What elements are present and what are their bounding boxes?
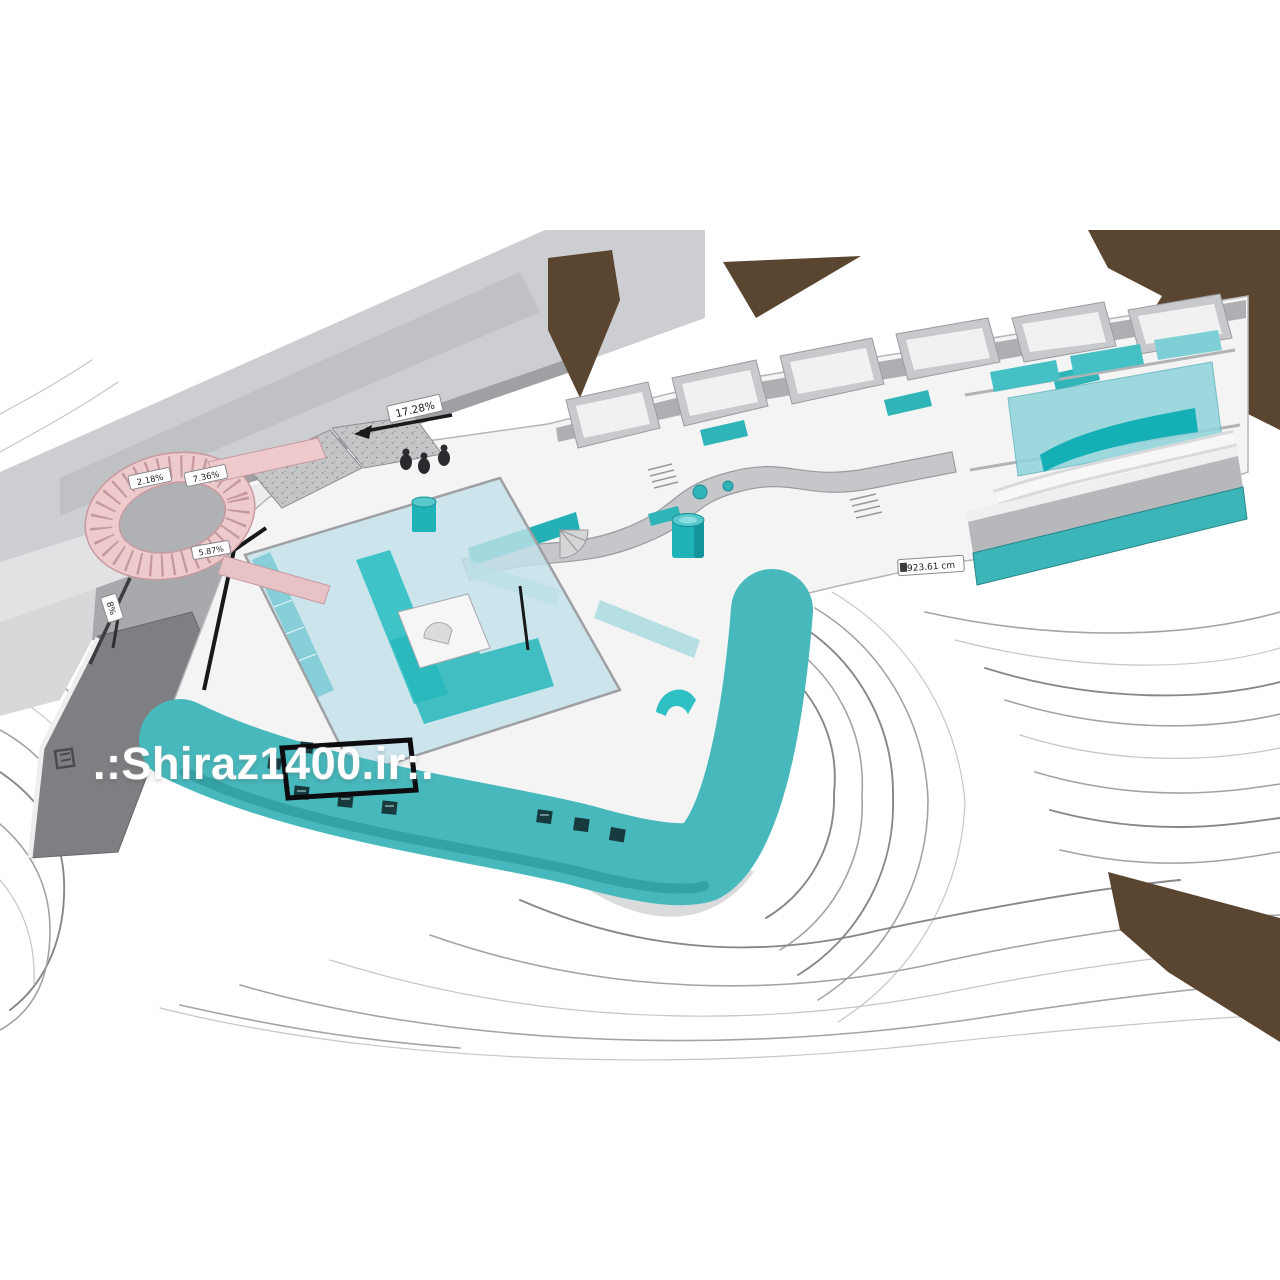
brown-triangle: [723, 256, 861, 318]
scene: 17.28% 2.18% 7.36% 5.87% 923.61 cm 8% .:…: [0, 0, 1280, 1280]
teal-blob: [693, 485, 707, 499]
brown-bottom-right: [1108, 872, 1280, 1042]
teal-blob: [723, 481, 733, 491]
cylinder-large: [672, 514, 704, 559]
cylinder-small: [412, 497, 436, 532]
watermark: .:Shiraz1400.ir:.: [93, 738, 434, 790]
site-model-rendering: 17.28% 2.18% 7.36% 5.87% 923.61 cm 8%: [0, 0, 1280, 1280]
